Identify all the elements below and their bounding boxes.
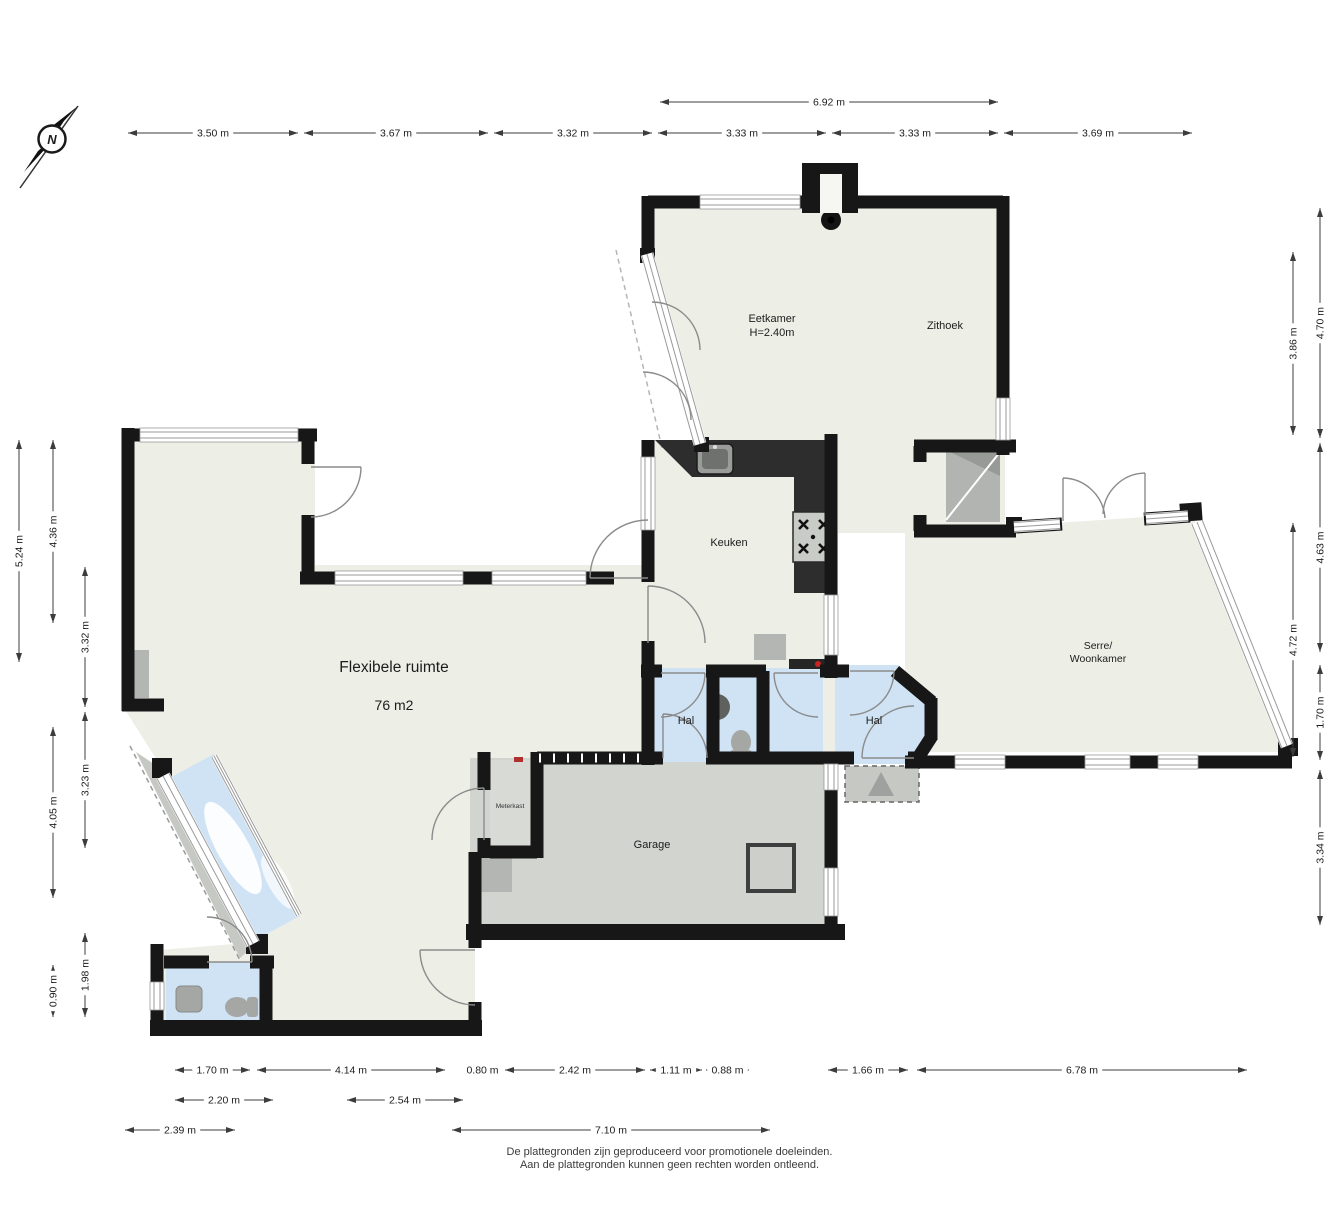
dimension-label: 2.39 m — [164, 1125, 196, 1137]
room-area-flexibele-ruimte: 76 m2 — [375, 697, 414, 713]
floorplan-page: Eetkamer H=2.40m Zithoek Keuken Flexibel… — [0, 0, 1339, 1216]
cabinet — [754, 634, 786, 660]
dimension-label: 1.98 m — [80, 959, 92, 991]
disclaimer-line1: De plattegronden zijn geproduceerd voor … — [0, 1146, 1339, 1159]
garage-skylight — [748, 845, 794, 891]
floorplan-drawing: Eetkamer H=2.40m Zithoek Keuken Flexibel… — [0, 0, 1339, 1216]
dimension-label: 6.92 m — [813, 97, 845, 109]
cabinet — [478, 858, 512, 892]
dimension-label: 4.14 m — [335, 1065, 367, 1077]
dimension-label: 0.80 m — [466, 1065, 498, 1077]
dimension-label: 3.33 m — [726, 128, 758, 140]
dimension-label: 2.20 m — [208, 1095, 240, 1107]
meter-mark — [514, 757, 523, 762]
dimension-label: 3.23 m — [80, 764, 92, 796]
dimension-label: 4.05 m — [48, 796, 60, 828]
dimension-label: 5.24 m — [14, 535, 26, 567]
dimension-label: 3.34 m — [1315, 831, 1327, 863]
room-label-eetkamer: Eetkamer — [748, 313, 795, 325]
entrance-porch — [845, 766, 919, 802]
room-label-serre-line2: Woonkamer — [1070, 653, 1127, 665]
dimension-label: 3.67 m — [380, 128, 412, 140]
dimension-label: 4.70 m — [1315, 307, 1327, 339]
dimension-label: 3.86 m — [1288, 327, 1300, 359]
dimension-label: 2.42 m — [559, 1065, 591, 1077]
room-label-hal-left: Hal — [678, 715, 695, 727]
dimension-label: 4.36 m — [48, 515, 60, 547]
dimension-label: 2.54 m — [389, 1095, 421, 1107]
dimension-label: 7.10 m — [595, 1125, 627, 1137]
room-label-serre-line1: Serre/ — [1084, 640, 1113, 652]
room-height-note: H=2.40m — [750, 327, 795, 339]
toilet-icon — [225, 997, 249, 1017]
dimension-label: 3.33 m — [899, 128, 931, 140]
room-label-zithoek: Zithoek — [927, 320, 964, 332]
dimension-label: 1.70 m — [1315, 696, 1327, 728]
dimension-label: 3.32 m — [80, 621, 92, 653]
compass-north-label: N — [47, 132, 57, 147]
dimension-label: 3.50 m — [197, 128, 229, 140]
dimension-label: 1.66 m — [852, 1065, 884, 1077]
chimney — [802, 163, 858, 213]
dimension-label: 3.69 m — [1082, 128, 1114, 140]
room-label-flexibele-ruimte: Flexibele ruimte — [339, 659, 448, 676]
dimension-label: 0.88 m — [711, 1065, 743, 1077]
room-label-keuken: Keuken — [710, 537, 747, 549]
disclaimer: De plattegronden zijn geproduceerd voor … — [0, 1146, 1339, 1172]
dimension-label: 1.70 m — [196, 1065, 228, 1077]
disclaimer-line2: Aan de plattegronden kunnen geen rechten… — [0, 1159, 1339, 1172]
room-label-garage: Garage — [634, 839, 671, 851]
stairs — [946, 450, 1000, 522]
dimension-label: 4.72 m — [1288, 624, 1300, 656]
room-label-hal-right: Hal — [866, 715, 883, 727]
compass-icon: N — [20, 106, 78, 188]
room-label-meterkast: Meterkast — [496, 803, 525, 810]
dimension-label: 1.11 m — [660, 1065, 692, 1077]
dimension-label: 4.63 m — [1315, 531, 1327, 563]
dimension-label: 6.78 m — [1066, 1065, 1098, 1077]
washbasin-icon — [176, 986, 202, 1012]
dimension-label: 0.90 m — [48, 975, 60, 1007]
dimension-label: 3.32 m — [557, 128, 589, 140]
